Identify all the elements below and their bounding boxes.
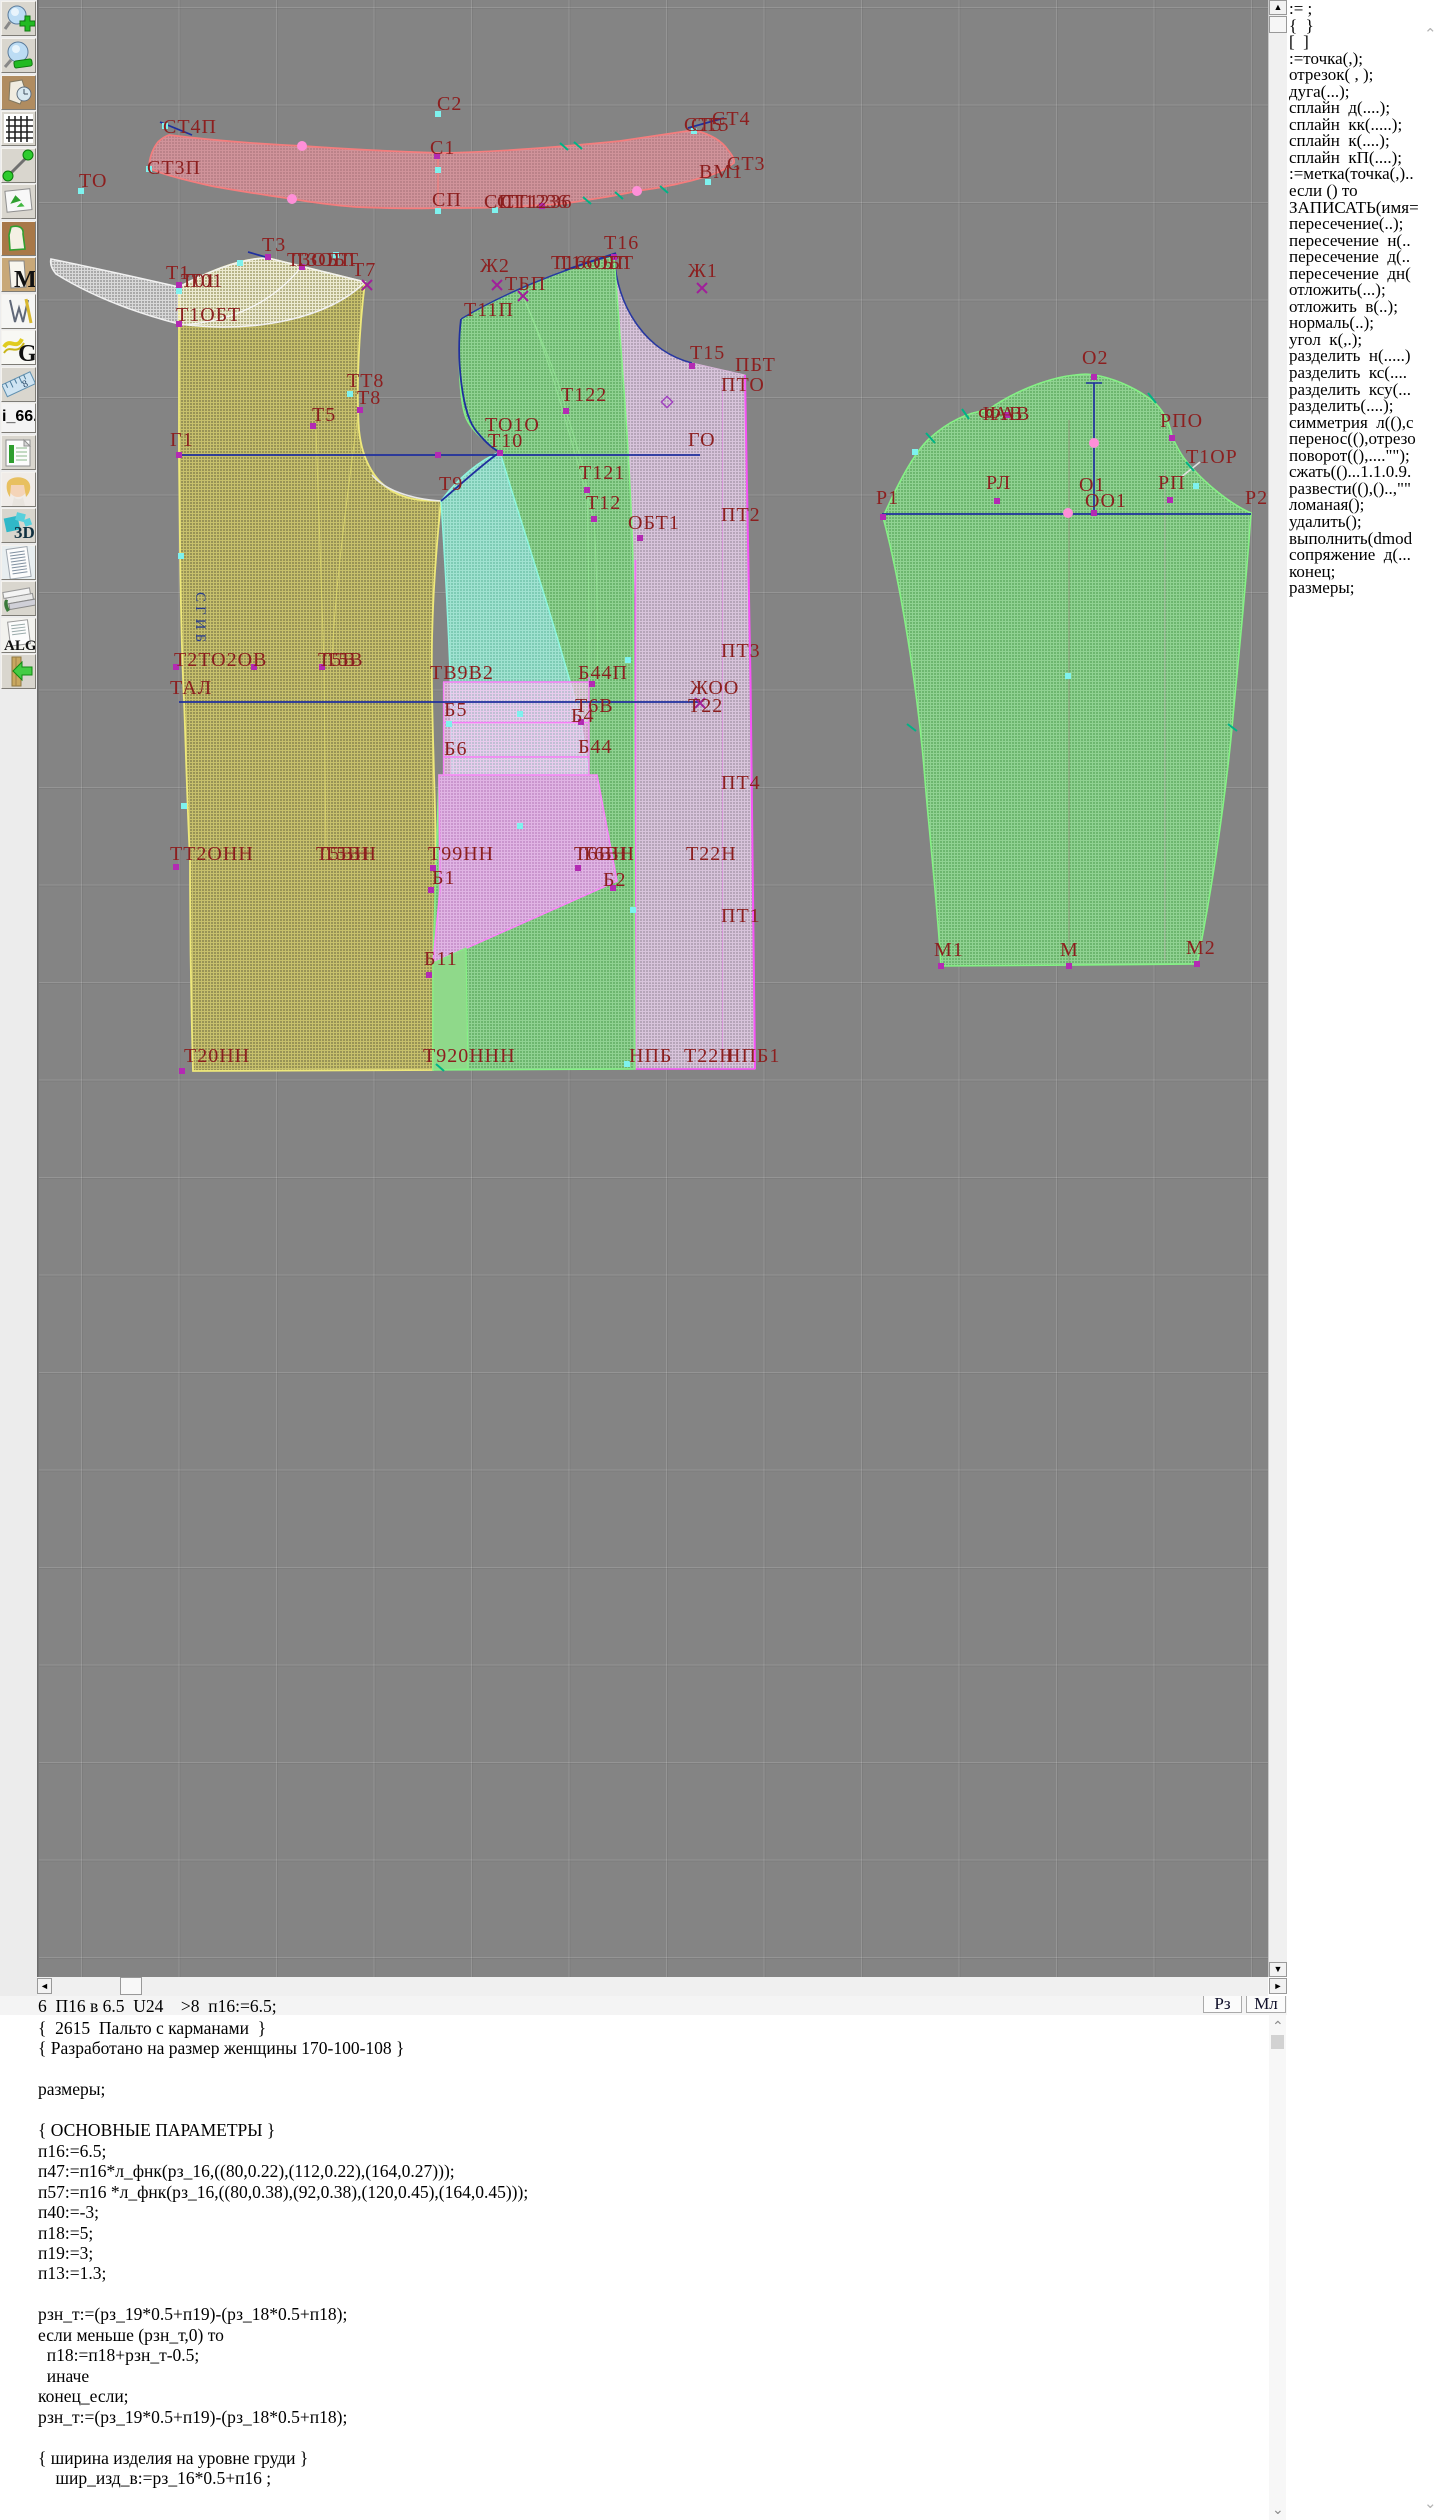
svg-text:Т122: Т122 — [561, 384, 607, 406]
svg-text:Б11: Б11 — [424, 948, 458, 970]
svg-text:Т6ВН: Т6ВН — [581, 843, 635, 865]
svg-text:ОБТ1: ОБТ1 — [628, 512, 680, 534]
svg-text:ПБТ: ПБТ — [735, 354, 776, 376]
svg-text:Т3: Т3 — [262, 234, 286, 256]
svg-text:Р1: Р1 — [876, 487, 899, 509]
svg-text:ПТ1: ПТ1 — [721, 905, 761, 927]
svg-text:ПТО: ПТО — [721, 374, 765, 396]
svg-text:ПТ2: ПТ2 — [721, 504, 761, 526]
svg-text:Т10: Т10 — [488, 430, 523, 452]
svg-text:СГИБ: СГИБ — [192, 592, 208, 646]
svg-text:ТАЛ: ТАЛ — [170, 677, 212, 699]
svg-text:Г1: Г1 — [170, 429, 194, 451]
svg-text:Т99НН: Т99НН — [428, 843, 494, 865]
svg-text:ОО1: ОО1 — [1085, 490, 1127, 512]
svg-text:ТО: ТО — [79, 170, 107, 192]
svg-text:СТ4П: СТ4П — [163, 116, 217, 138]
svg-text:ALG: ALG — [4, 638, 35, 652]
svg-text:НПБ1: НПБ1 — [726, 1045, 780, 1067]
svg-text:Б5: Б5 — [444, 699, 467, 721]
svg-text:НПБ: НПБ — [629, 1045, 672, 1067]
svg-text:ТВ9В2: ТВ9В2 — [430, 662, 494, 684]
svg-text:Б4: Б4 — [571, 705, 594, 727]
svg-text:Т15: Т15 — [690, 342, 725, 364]
svg-text:М: М — [1060, 939, 1079, 961]
svg-text:СТ3П: СТ3П — [147, 157, 201, 179]
svg-text:СТ4: СТ4 — [712, 108, 751, 130]
svg-text:Т22: Т22 — [688, 695, 723, 717]
svg-text:Т7: Т7 — [352, 259, 376, 281]
svg-text:РЛ: РЛ — [986, 472, 1011, 494]
svg-text:Т20НН: Т20НН — [184, 1045, 250, 1067]
svg-text:Т5: Т5 — [312, 404, 336, 426]
svg-text:Т8: Т8 — [357, 387, 381, 409]
svg-text:СТ1236: СТ1236 — [501, 191, 573, 213]
svg-text:Т1ОР: Т1ОР — [1186, 446, 1238, 468]
svg-text:Б2: Б2 — [603, 869, 626, 891]
svg-text:Т2ТО2ОВ: Т2ТО2ОВ — [174, 649, 267, 671]
svg-text:С1: С1 — [430, 137, 455, 159]
svg-text:G: G — [18, 341, 35, 364]
svg-text:3D: 3D — [14, 523, 35, 542]
svg-text:С2: С2 — [437, 93, 462, 115]
svg-text:Т16ОБТ: Т16ОБТ — [558, 252, 634, 274]
svg-text:Б1: Б1 — [432, 867, 455, 889]
svg-text:О2: О2 — [1082, 347, 1108, 369]
svg-text:РП: РП — [1158, 472, 1186, 494]
svg-text:РПО: РПО — [1160, 410, 1203, 432]
svg-text:М2: М2 — [1186, 937, 1216, 959]
svg-text:Т16: Т16 — [604, 232, 639, 254]
svg-text:Ж1: Ж1 — [688, 260, 718, 282]
svg-text:Б44П: Б44П — [578, 662, 628, 684]
svg-text:Т22Н: Т22Н — [686, 843, 737, 865]
svg-text:Т01: Т01 — [188, 270, 223, 292]
svg-text:ФАВ: ФАВ — [985, 403, 1030, 425]
svg-text:Т9: Т9 — [439, 473, 463, 495]
svg-text:Б6: Б6 — [444, 738, 467, 760]
svg-text:Т1ОБТ: Т1ОБТ — [176, 304, 241, 326]
svg-text:М1: М1 — [934, 939, 964, 961]
svg-text:ТЗОБТ: ТЗОБТ — [294, 249, 359, 271]
svg-text:Б44: Б44 — [578, 736, 612, 758]
svg-text:Т5В: Т5В — [325, 649, 364, 671]
svg-text:СП: СП — [432, 189, 462, 211]
svg-text:M: M — [14, 267, 35, 291]
svg-text:ТБП: ТБП — [505, 273, 546, 295]
svg-text:ПТ3: ПТ3 — [721, 640, 761, 662]
svg-text:Т5ВН: Т5ВН — [323, 843, 377, 865]
svg-text:Т12: Т12 — [586, 492, 621, 514]
svg-text:ТТ2ОНН: ТТ2ОНН — [170, 843, 254, 865]
svg-text:Р2: Р2 — [1245, 487, 1268, 509]
svg-text:ПТ4: ПТ4 — [721, 772, 761, 794]
svg-text:Т121: Т121 — [579, 462, 625, 484]
svg-text:Т920ННН: Т920ННН — [423, 1045, 516, 1067]
svg-text:ВМ1: ВМ1 — [699, 161, 743, 183]
svg-text:Т11П: Т11П — [464, 299, 514, 321]
svg-text:ГО: ГО — [688, 429, 716, 451]
